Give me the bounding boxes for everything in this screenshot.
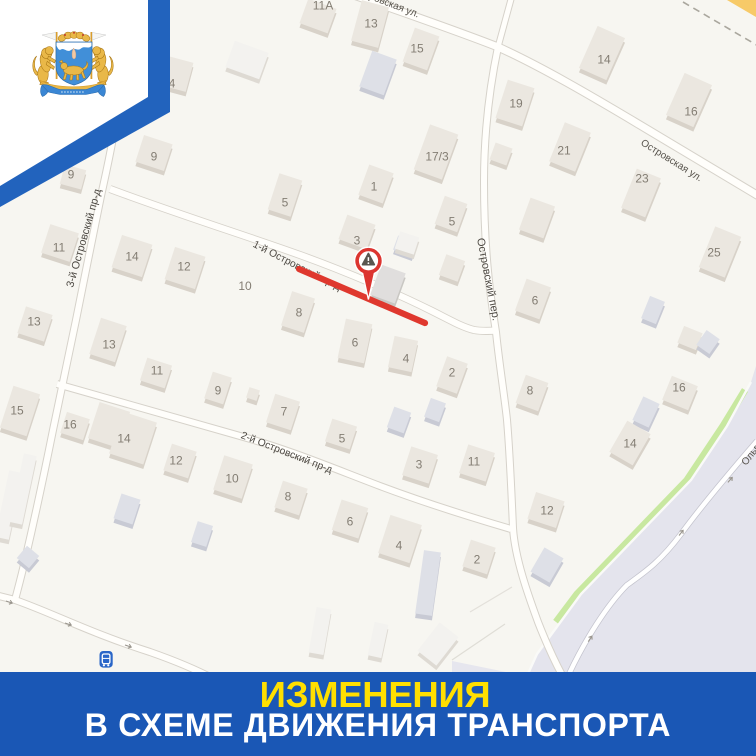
svg-text:6: 6: [352, 336, 359, 350]
svg-text:3: 3: [354, 234, 361, 248]
svg-text:25: 25: [707, 246, 721, 260]
svg-text:12: 12: [540, 504, 554, 518]
svg-text:9: 9: [215, 384, 222, 398]
svg-text:16: 16: [672, 381, 686, 395]
svg-text:5: 5: [339, 432, 346, 446]
svg-text:6: 6: [347, 515, 354, 529]
svg-text:16: 16: [684, 105, 698, 119]
svg-text:2: 2: [474, 553, 481, 567]
svg-text:14: 14: [125, 250, 139, 264]
svg-text:23: 23: [635, 172, 649, 186]
svg-text:13: 13: [102, 338, 116, 352]
svg-text:12: 12: [177, 260, 191, 274]
svg-text:13: 13: [27, 315, 41, 329]
svg-text:14: 14: [117, 432, 131, 446]
svg-text:5: 5: [282, 196, 289, 210]
svg-text:17/3: 17/3: [425, 150, 449, 164]
svg-text:10: 10: [225, 472, 239, 486]
svg-text:2: 2: [449, 366, 456, 380]
svg-text:9: 9: [151, 150, 158, 164]
svg-text:11А: 11А: [313, 0, 333, 13]
svg-text:8: 8: [527, 384, 534, 398]
svg-text:10: 10: [238, 279, 252, 293]
svg-text:1: 1: [371, 180, 378, 194]
svg-text:15: 15: [410, 42, 424, 56]
svg-text:8: 8: [296, 306, 303, 320]
svg-text:14: 14: [597, 53, 611, 67]
svg-text:4: 4: [396, 539, 403, 553]
svg-text:11: 11: [151, 364, 164, 378]
svg-text:9: 9: [68, 168, 75, 182]
svg-text:5: 5: [449, 215, 456, 229]
svg-text:14: 14: [623, 437, 637, 451]
svg-text:16: 16: [63, 418, 77, 432]
svg-text:21: 21: [557, 144, 571, 158]
svg-text:4: 4: [403, 352, 410, 366]
svg-text:6: 6: [532, 294, 539, 308]
svg-text:11: 11: [468, 455, 481, 469]
svg-text:19: 19: [509, 97, 523, 111]
svg-text:7: 7: [281, 405, 288, 419]
svg-text:8: 8: [285, 490, 292, 504]
svg-text:13: 13: [364, 17, 378, 31]
svg-text:12: 12: [169, 454, 183, 468]
svg-text:11: 11: [53, 241, 66, 255]
svg-text:В СХЕМЕ ДВИЖЕНИЯ ТРАНСПОРТА: В СХЕМЕ ДВИЖЕНИЯ ТРАНСПОРТА: [85, 707, 671, 743]
svg-text:3: 3: [416, 458, 423, 472]
svg-text:15: 15: [10, 404, 24, 418]
